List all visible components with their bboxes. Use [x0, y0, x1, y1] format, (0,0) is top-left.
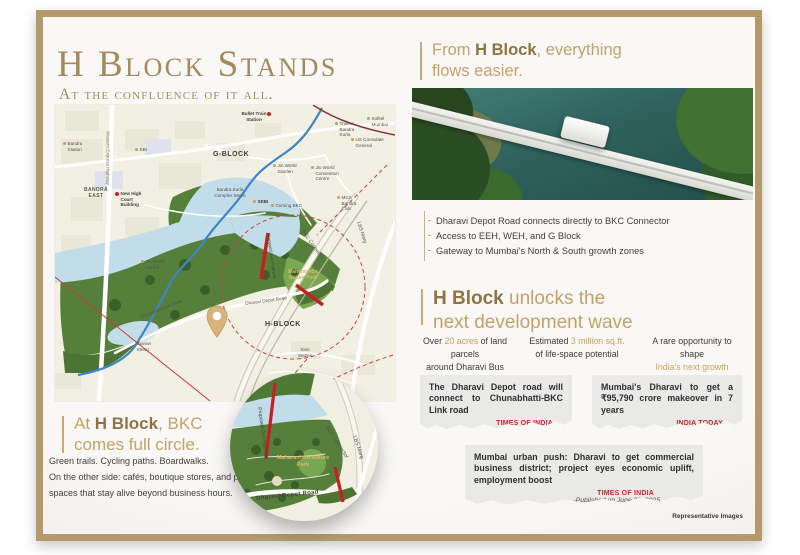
aerial-bridge-photo: [412, 88, 753, 200]
news-headline: Mumbai urban push: Dharavi to get commer…: [474, 452, 694, 486]
body-line: Green trails. Cycling paths. Boardwalks.: [49, 454, 257, 470]
unlock-heading: H Block unlocks the next development wav…: [433, 287, 633, 335]
map-label-us-consulate: US Consulate General: [351, 137, 387, 148]
map-label-sebi: SEBI: [253, 199, 268, 205]
stat-life-space: Estimated 3 million sq.ft. of life-space…: [527, 335, 627, 361]
right-heading-bold: H Block: [475, 41, 536, 59]
news-published: -Published on June 30, 2025: [474, 497, 694, 504]
map-label-jio-world-centre: Jio World Centre: [141, 259, 169, 270]
h-block-location-pin: [206, 305, 228, 339]
landmark-dot: [367, 117, 370, 120]
news-source: TIMES OF INDIA: [429, 420, 563, 427]
news-source: INDIA TODAY: [601, 420, 733, 427]
map-label-jio-world-convention: Jio World Convention Centre: [311, 165, 349, 182]
landmark-dot: [311, 166, 314, 169]
inset-label-nature-park: Maharashtra Nature Park: [276, 455, 330, 468]
map-label-g-block: G-BLOCK: [213, 151, 249, 159]
poster-page: H Block Stands At the confluence of it a…: [0, 0, 800, 555]
unlock-accent-bar: [421, 289, 423, 325]
poster-content: H Block Stands At the confluence of it a…: [43, 17, 755, 534]
map-label-new-high-court: New High Court Building: [115, 191, 147, 208]
map-label-h-block: H-BLOCK: [265, 321, 301, 329]
landmark-dot: [273, 164, 276, 167]
bullet-text: Gateway to Mumbai's North & South growth…: [436, 246, 644, 256]
map-label-bullet-train-station: Bullet Train Station: [241, 111, 279, 122]
body-line: On the other side: cafés, boutique store…: [49, 470, 257, 486]
page-subtitle: At the confluence of it all.: [59, 86, 274, 104]
bullet-item: Dharavi Depot Road connects directly to …: [428, 214, 670, 227]
landmark-dot: [141, 260, 144, 263]
h-block-inset-map: Proposed G-H Pathway Maharashtra Nature …: [230, 373, 378, 521]
right-heading-post: , everything: [537, 41, 622, 59]
heading-accent-bar: [420, 42, 422, 80]
callout-body: Green trails. Cycling paths. Boardwalks.…: [49, 454, 257, 501]
landmark-dot: [63, 142, 66, 145]
bullet-tick-icon: [428, 250, 431, 252]
bkc-locality-map: Bandra Station Western Express Highway S…: [55, 105, 395, 401]
unlock-line2: next development wave: [433, 312, 633, 333]
map-label-coming-bkc: Coming BKC: [271, 203, 303, 209]
callout-bold: H Block: [95, 414, 158, 433]
map-label-trident: Trident Bandra Kurla: [335, 121, 365, 138]
bullet-tick-icon: [428, 235, 431, 237]
news-clipping-makeover: Mumbai's Dharavi to get a ₹95,790 crore …: [592, 375, 742, 433]
callout-post: , BKC: [158, 414, 202, 433]
representative-images-note: Representative Images: [672, 513, 743, 520]
map-label-mca-club: MCA Bandra Club: [337, 195, 367, 212]
map-label-sion-station: Sion Station: [293, 347, 317, 358]
callout-accent-bar: [62, 416, 64, 453]
landmark-dot-red: [267, 112, 271, 116]
bullet-tick-icon: [428, 220, 431, 222]
landmark-dot: [335, 122, 338, 125]
right-heading-line2: flows easier.: [432, 62, 523, 80]
landmark-dot: [351, 138, 354, 141]
map-label-jio-world-garden: Jio World Garden: [273, 163, 301, 174]
news-published: -Published on May 30, 2025: [429, 427, 563, 434]
body-line: spaces that stay alive beyond business h…: [49, 486, 257, 502]
map-label-bkc-metro: Bandra Kurla Complex Metro: [211, 187, 249, 198]
gold-frame: H Block Stands At the confluence of it a…: [36, 10, 762, 541]
bullet-item: Access to EEH, WEH, and G Block: [428, 229, 581, 242]
news-headline: The Dharavi Depot road will connect to C…: [429, 382, 563, 416]
callout-line2: comes full circle.: [74, 435, 200, 454]
callout-pre: At: [74, 414, 95, 433]
news-source: TIMES OF INDIA: [474, 490, 694, 497]
map-label-sofitel: Sofitel Mumbai: [367, 116, 393, 127]
landmark-dot-red: [115, 192, 119, 196]
unlock-bold: H Block: [433, 288, 504, 309]
bullets-accent-line: [424, 211, 425, 261]
news-clipping-urban-push: Mumbai urban push: Dharavi to get commer…: [465, 445, 703, 509]
bullet-text: Access to EEH, WEH, and G Block: [436, 231, 581, 241]
unlock-post: unlocks the: [504, 288, 605, 309]
map-label-bandra-east: BANDRA EAST: [83, 187, 109, 199]
bullet-item: Gateway to Mumbai's North & South growth…: [428, 244, 644, 257]
news-published: -Published on May 29, 2025: [601, 427, 733, 434]
news-clipping-depot-road: The Dharavi Depot road will connect to C…: [420, 375, 572, 433]
landmark-dot: [271, 204, 274, 207]
right-heading-pre: From: [432, 41, 475, 59]
map-label-western-express-highway: Western Express Highway: [105, 131, 111, 211]
landmark-dot: [337, 196, 340, 199]
callout-heading: At H Block, BKC comes full circle.: [74, 413, 203, 456]
bullet-text: Dharavi Depot Road connects directly to …: [436, 216, 670, 226]
landmark-dot: [253, 200, 256, 203]
page-title: H Block Stands: [57, 43, 338, 86]
landmark-dot: [135, 148, 138, 151]
map-label-dharavi-metro: Dharavi Metro: [129, 341, 157, 352]
map-label-sbi: SBI: [135, 147, 147, 153]
news-headline: Mumbai's Dharavi to get a ₹95,790 crore …: [601, 382, 733, 416]
map-label-bandra-station: Bandra Station: [63, 141, 93, 152]
right-heading: From H Block, everything flows easier.: [432, 40, 622, 83]
map-label-nature-park: Maharashtra Nature Park: [281, 269, 325, 281]
